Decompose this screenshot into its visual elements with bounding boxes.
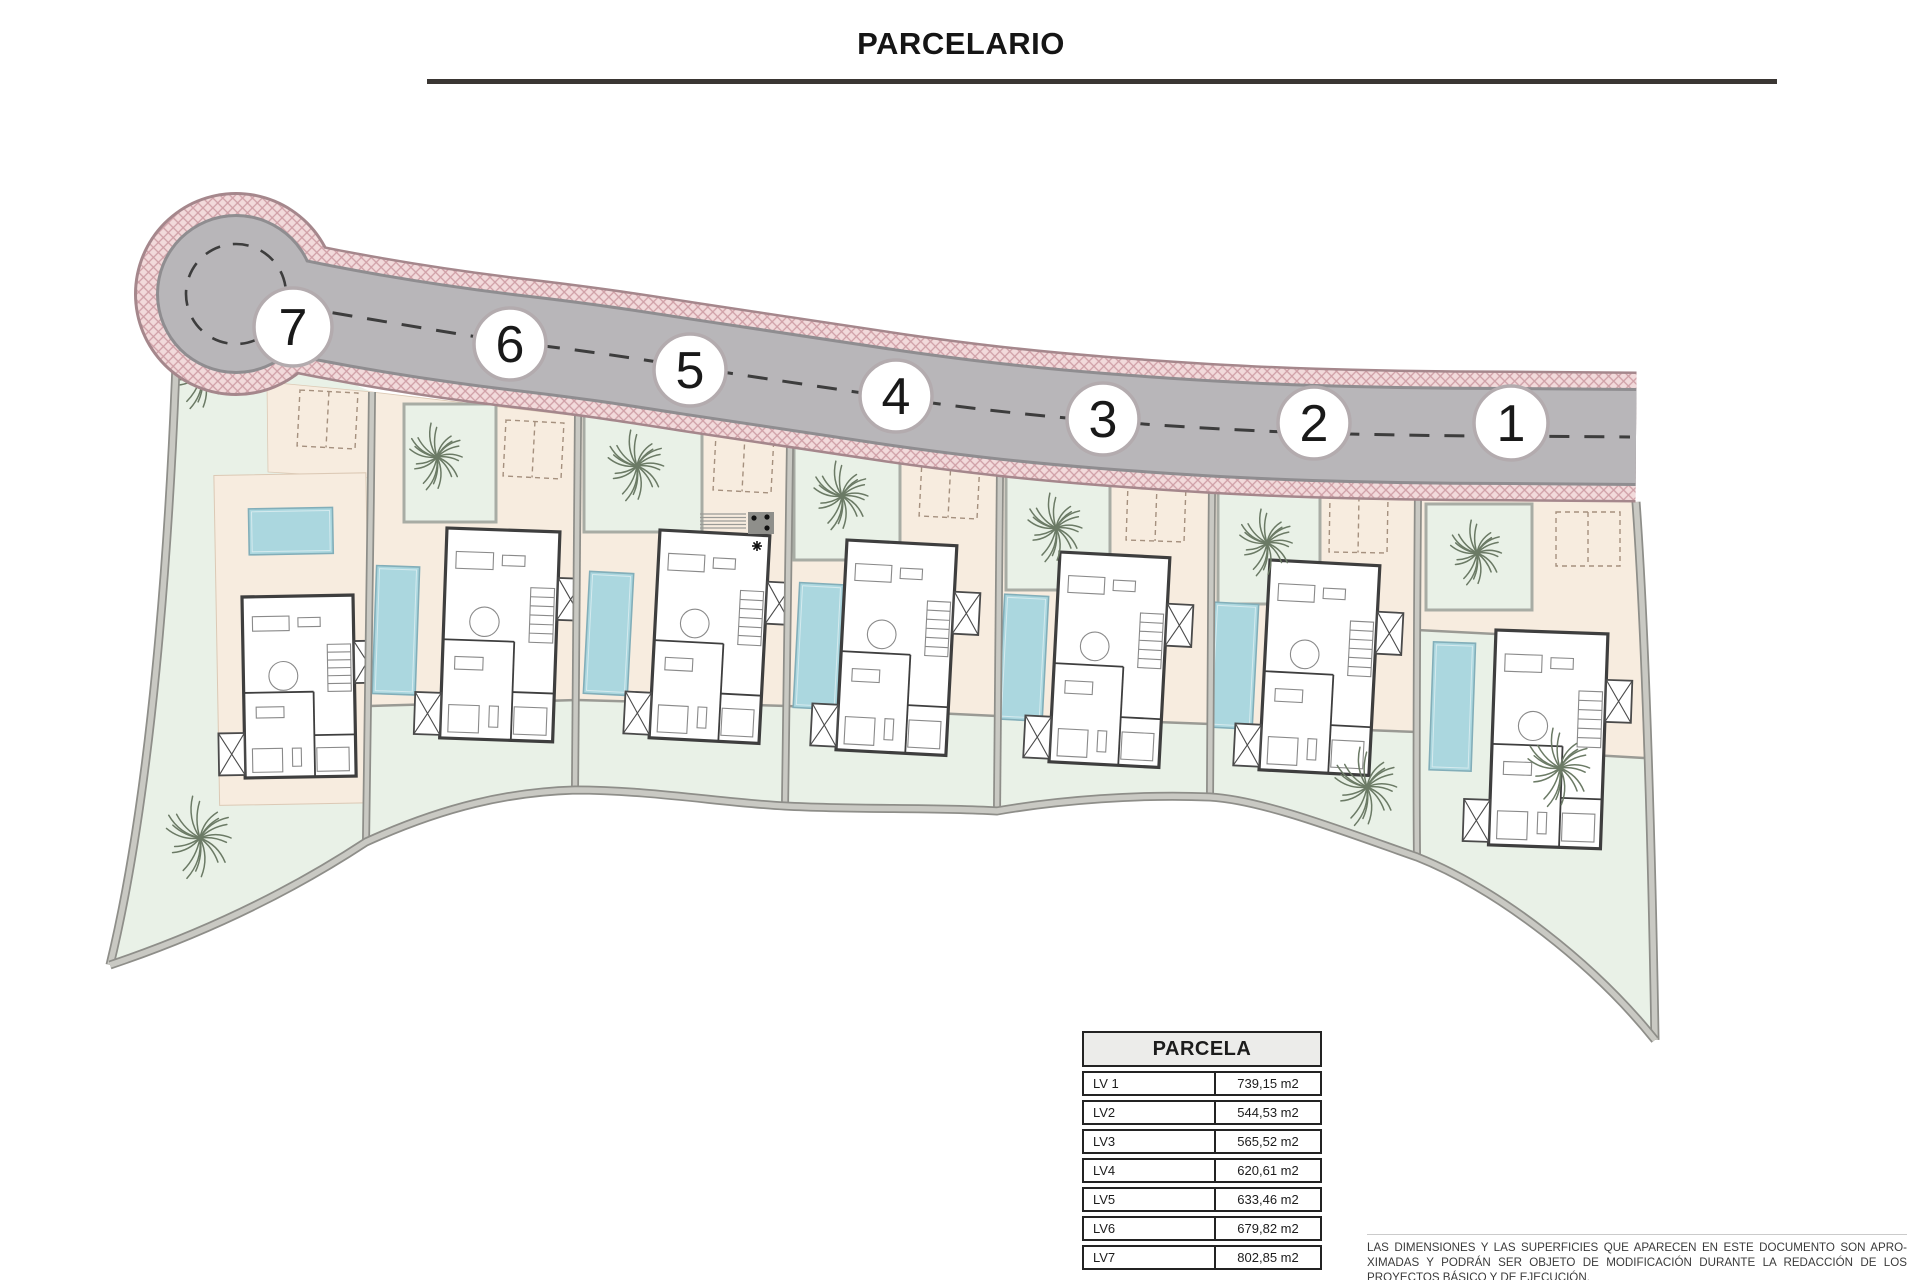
villa — [214, 473, 383, 806]
courtyard-garden — [404, 404, 496, 522]
parcel-row-6: LV6679,82 m2 — [1082, 1216, 1322, 1241]
plot-number-label: 2 — [1300, 395, 1329, 453]
plot-number-label: 6 — [496, 316, 525, 374]
plot-number-5: 5 — [654, 334, 726, 406]
disclaimer-note: LAS DIMENSIONES Y LAS SUPERFICIES QUE AP… — [1367, 1240, 1907, 1280]
parcel-row-value: 739,15 m2 — [1214, 1073, 1320, 1094]
parcel-row-value: 802,85 m2 — [1214, 1247, 1320, 1268]
parcel-row-1: LV 1739,15 m2 — [1082, 1071, 1322, 1096]
disclaimer-line: LAS DIMENSIONES Y LAS SUPERFICIES QUE AP… — [1367, 1240, 1907, 1255]
disclaimer-line: XIMADAS Y PODRÁN SER OBJETO DE MODIFICAC… — [1367, 1255, 1907, 1270]
parcel-row-4: LV4620,61 m2 — [1082, 1158, 1322, 1183]
closet-box — [1605, 680, 1632, 723]
closet-box — [1375, 612, 1403, 655]
parcel-row-label: LV5 — [1084, 1189, 1214, 1210]
parcel-row-value: 679,82 m2 — [1214, 1218, 1320, 1239]
plot-number-2: 2 — [1278, 387, 1350, 459]
parcel-row-2: LV2544,53 m2 — [1082, 1100, 1322, 1125]
plot-7 — [110, 310, 383, 965]
site-plan-svg: 7654321 — [0, 0, 1920, 1280]
plot-4 — [785, 442, 1000, 811]
parcel-row-label: LV7 — [1084, 1247, 1214, 1268]
closet-box — [1165, 604, 1193, 647]
swimming-pool — [998, 594, 1048, 721]
plot-5 — [575, 414, 796, 806]
parcel-row-label: LV3 — [1084, 1131, 1214, 1152]
plot-number-label: 1 — [1497, 395, 1526, 453]
plot-number-label: 7 — [279, 299, 308, 357]
plot-3 — [996, 470, 1212, 811]
closet-box — [414, 692, 441, 735]
swimming-pool — [1208, 602, 1258, 729]
parcel-row-label: LV 1 — [1084, 1073, 1214, 1094]
closet-box — [952, 592, 980, 635]
plot-6 — [366, 392, 586, 842]
parcel-row-5: LV5633,46 m2 — [1082, 1187, 1322, 1212]
parcel-row-3: LV3565,52 m2 — [1082, 1129, 1322, 1154]
parcel-row-label: LV2 — [1084, 1102, 1214, 1123]
disclaimer-rule — [1367, 1234, 1907, 1235]
plot-number-label: 3 — [1089, 391, 1118, 449]
entry-terrace — [267, 382, 372, 478]
parcel-row-label: LV4 — [1084, 1160, 1214, 1181]
plot-number-label: 4 — [882, 368, 911, 426]
plot-number-3: 3 — [1067, 383, 1139, 455]
plot-number-6: 6 — [474, 308, 546, 380]
plot-number-1: 1 — [1474, 386, 1548, 460]
swimming-pool — [793, 583, 843, 710]
plot-number-4: 4 — [860, 360, 932, 432]
plot-number-label: 5 — [676, 342, 705, 400]
closet-box — [623, 691, 651, 734]
parcel-row-value: 544,53 m2 — [1214, 1102, 1320, 1123]
closet-box — [1463, 799, 1490, 842]
plot-1 — [1417, 492, 1655, 1040]
closet-box — [1023, 715, 1051, 758]
parcel-row-7: LV7802,85 m2 — [1082, 1245, 1322, 1270]
closet-box — [1233, 723, 1261, 766]
parcelario-sheet: PARCELARIO 7654321 PARCELA LV 1739,15 m2… — [0, 0, 1920, 1280]
parcel-table-header: PARCELA — [1082, 1031, 1322, 1067]
swimming-pool — [248, 507, 333, 554]
swimming-pool — [583, 571, 633, 695]
parcel-row-value: 620,61 m2 — [1214, 1160, 1320, 1181]
closet-box — [810, 703, 838, 746]
plot-number-7: 7 — [254, 288, 332, 366]
parcel-row-value: 565,52 m2 — [1214, 1131, 1320, 1152]
parcel-table: PARCELA LV 1739,15 m2LV2544,53 m2LV3565,… — [1082, 1031, 1322, 1274]
parcel-row-value: 633,46 m2 — [1214, 1189, 1320, 1210]
disclaimer-line: PROYECTOS BÁSICO Y DE EJECUCIÓN. — [1367, 1270, 1907, 1280]
closet-box — [218, 733, 245, 775]
parcel-row-label: LV6 — [1084, 1218, 1214, 1239]
